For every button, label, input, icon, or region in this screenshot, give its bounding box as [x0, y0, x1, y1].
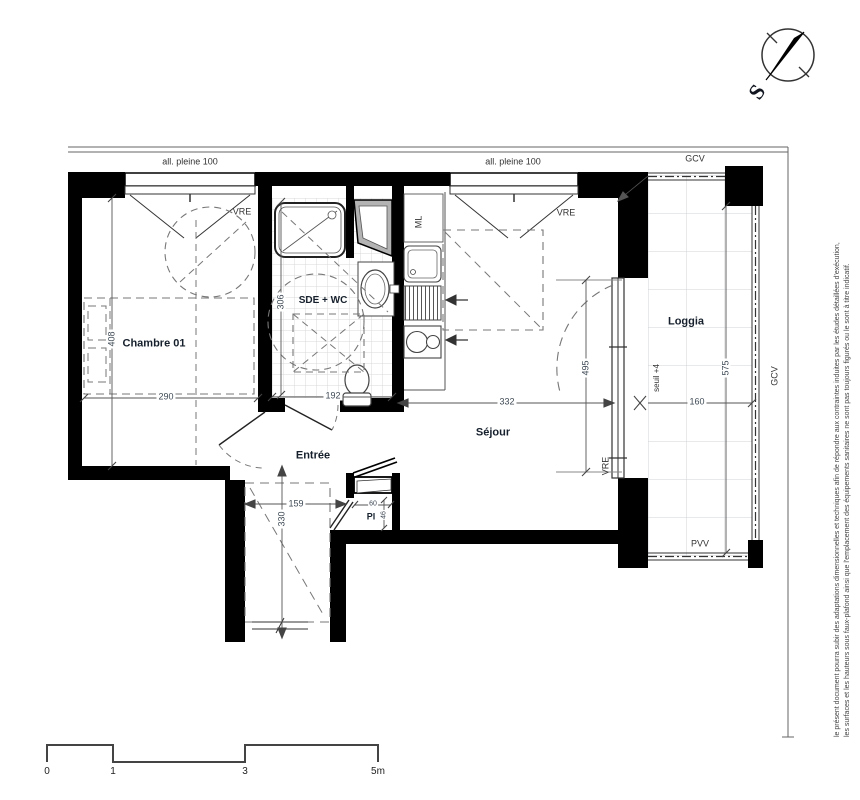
loggia-bay-window	[557, 278, 627, 478]
scale-bar	[47, 745, 378, 762]
scale-tick-1: 1	[110, 766, 116, 777]
dim-living-depth: 495	[582, 358, 591, 377]
vre-label-right-window: VRE	[557, 209, 576, 218]
dim-loggia-width: 160	[687, 398, 706, 407]
threshold-label: seuil +4	[653, 364, 661, 392]
room-label-loggia: Loggia	[668, 317, 704, 328]
pvv-label: PVV	[691, 540, 709, 549]
gcv-label-top: GCV	[685, 155, 705, 164]
dim-entry-width: 159	[286, 500, 305, 509]
floor-plan-canvas: all. pleine 100 all. pleine 100 GCV GCV …	[0, 0, 860, 800]
dim-bedroom-width: 290	[156, 393, 175, 402]
kitchen-units	[404, 192, 445, 390]
room-label-closet: Pl	[367, 513, 376, 522]
dim-bedroom-depth: 408	[108, 329, 117, 348]
vre-label-bay: VRE	[602, 457, 611, 476]
bedroom-circulation	[165, 207, 255, 465]
kitchen-arrows	[446, 295, 468, 345]
entry-door	[353, 458, 397, 493]
vre-label-left-window: VRE	[233, 208, 252, 217]
room-label-bathroom: SDE + WC	[299, 296, 348, 306]
living-window	[450, 173, 578, 238]
gcv-label-right: GCV	[771, 366, 780, 386]
dim-closet-width: 60	[368, 501, 378, 508]
dim-bathroom-depth: 306	[277, 292, 286, 311]
dim-closet-depth: 46	[381, 510, 388, 520]
scale-tick-0: 0	[44, 766, 50, 777]
disclaimer-line-1: le présent document pourra subir des ada…	[833, 242, 843, 737]
shower-tray	[275, 203, 345, 257]
living-furniture-zone	[443, 230, 543, 330]
bedroom-door	[219, 412, 265, 468]
scale-tick-5m: 5m	[371, 766, 385, 777]
washing-machine-label: ML	[415, 216, 424, 229]
scale-tick-3: 3	[242, 766, 248, 777]
disclaimer-text: le présent document pourra subir des ada…	[833, 242, 852, 737]
bathroom-door	[285, 405, 338, 430]
loggia-tiled-floor	[648, 175, 752, 557]
toilet	[343, 365, 371, 406]
compass-north-arrow	[762, 29, 814, 81]
dim-living-width: 332	[497, 398, 516, 407]
floor-plan-drawing	[0, 0, 860, 800]
bedroom-window	[125, 173, 255, 238]
dim-bathroom-width: 192	[323, 392, 342, 401]
allege-label-left: all. pleine 100	[162, 158, 218, 167]
dim-entry-depth: 330	[278, 509, 287, 528]
room-label-entry: Entrée	[296, 451, 330, 462]
room-label-living: Séjour	[476, 428, 510, 439]
room-label-bedroom: Chambre 01	[123, 339, 186, 350]
allege-label-right: all. pleine 100	[485, 158, 541, 167]
dim-loggia-depth: 575	[722, 358, 731, 377]
disclaimer-line-2: les surfaces et les hauteurs sous faux-p…	[843, 242, 853, 737]
